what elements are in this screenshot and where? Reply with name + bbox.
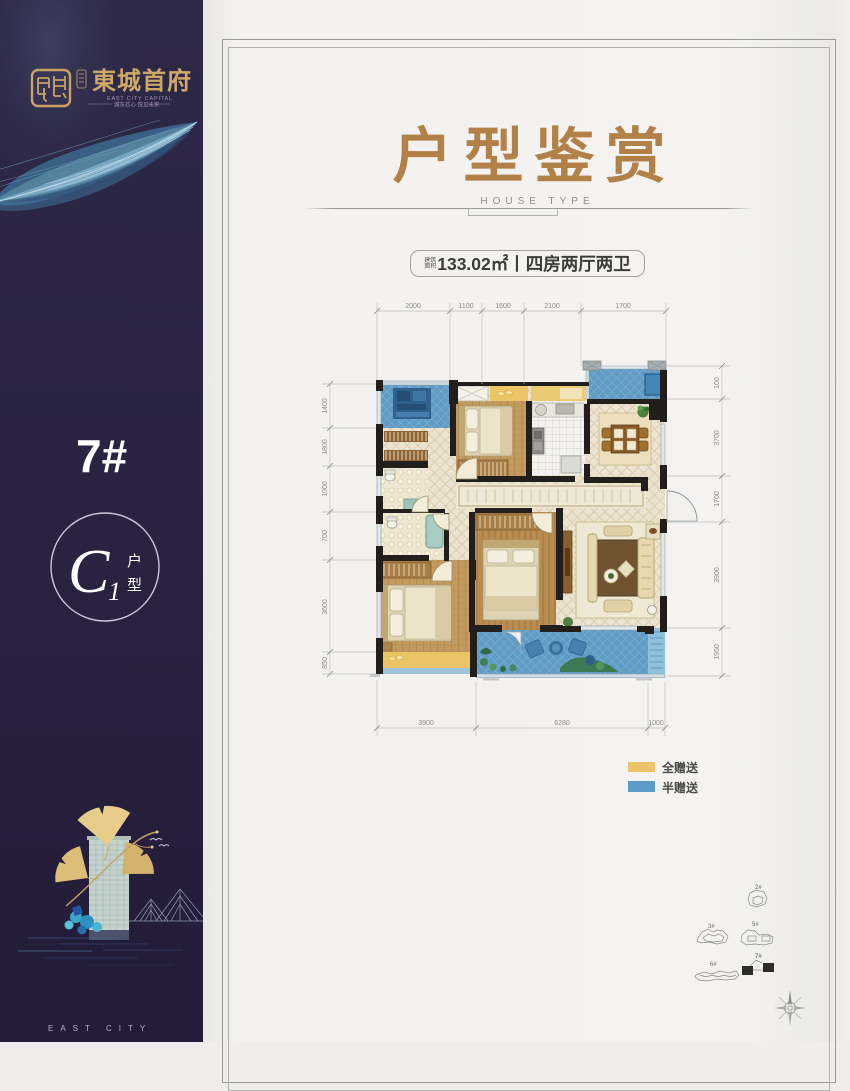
svg-text:2000: 2000 bbox=[405, 303, 421, 310]
svg-text:3#: 3# bbox=[708, 924, 715, 930]
svg-text:1700: 1700 bbox=[615, 303, 631, 310]
svg-text:1950: 1950 bbox=[714, 644, 721, 660]
svg-text:EAST CITY: EAST CITY bbox=[48, 1024, 152, 1033]
svg-text:7#: 7# bbox=[76, 430, 127, 482]
svg-text:1800: 1800 bbox=[322, 439, 329, 455]
svg-text:1600: 1600 bbox=[495, 303, 511, 310]
svg-text:1: 1 bbox=[108, 577, 121, 606]
svg-text:户: 户 bbox=[127, 553, 142, 570]
svg-text:3600: 3600 bbox=[322, 599, 329, 615]
svg-text:1000: 1000 bbox=[648, 720, 664, 727]
svg-text:1400: 1400 bbox=[322, 398, 329, 414]
svg-text:6#: 6# bbox=[710, 962, 717, 968]
svg-text:1000: 1000 bbox=[322, 481, 329, 497]
svg-text:C: C bbox=[68, 538, 110, 606]
svg-text:7#: 7# bbox=[755, 954, 762, 960]
svg-text:3900: 3900 bbox=[714, 567, 721, 583]
svg-text:700: 700 bbox=[322, 530, 329, 542]
svg-text:EAST CITY CAPITAL: EAST CITY CAPITAL bbox=[107, 96, 173, 102]
svg-text:6280: 6280 bbox=[554, 720, 570, 727]
svg-text:5#: 5# bbox=[752, 922, 759, 928]
svg-text:2100: 2100 bbox=[544, 303, 560, 310]
svg-text:1100: 1100 bbox=[458, 303, 473, 310]
svg-text:東城首府: 東城首府 bbox=[92, 67, 192, 95]
svg-text:型: 型 bbox=[127, 577, 142, 594]
svg-text:1700: 1700 bbox=[714, 491, 721, 507]
svg-text:3900: 3900 bbox=[418, 720, 434, 727]
svg-text:2#: 2# bbox=[755, 885, 762, 891]
svg-text:3700: 3700 bbox=[714, 430, 721, 446]
svg-text:城东芯心 悦见未来: 城东芯心 悦见未来 bbox=[114, 101, 160, 109]
svg-text:850: 850 bbox=[322, 657, 329, 669]
svg-text:100: 100 bbox=[714, 377, 721, 389]
